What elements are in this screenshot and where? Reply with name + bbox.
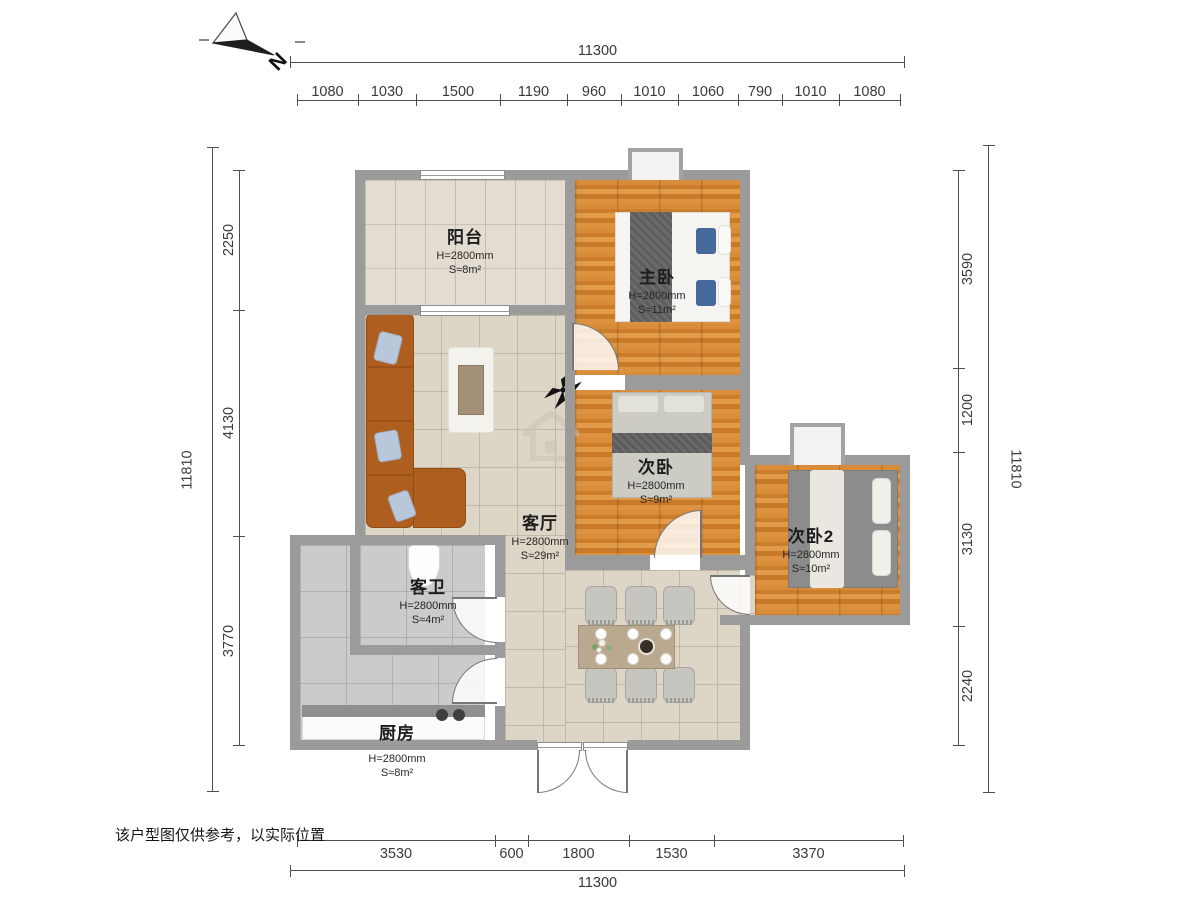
dim-top-total-label: 11300 <box>578 43 617 59</box>
dining-chair <box>663 667 695 703</box>
dim-segment: 1080 <box>297 84 358 101</box>
dim-segment: 1800 <box>528 840 629 862</box>
wall <box>290 535 505 545</box>
dim-segment: 1200 <box>958 368 978 452</box>
room-label-balcony: 阳台 H=2800mm S≈8m² <box>436 223 493 276</box>
serving-dish <box>638 638 655 655</box>
entry-door-right <box>585 750 628 793</box>
dim-segment: 1060 <box>678 84 738 101</box>
bed-pillow <box>718 225 731 255</box>
room-label-bath: 客卫 H=2800mm S≈4m² <box>399 573 456 626</box>
dim-segment: 3530 <box>297 840 495 862</box>
bed-pillow <box>872 530 891 576</box>
dim-segment: 1030 <box>358 84 416 101</box>
wall <box>565 555 650 570</box>
wall <box>355 170 750 180</box>
compass-icon: N <box>198 10 306 72</box>
sofa-pillow <box>374 429 403 463</box>
wall <box>495 642 505 658</box>
dim-segment: 600 <box>495 840 528 862</box>
disclaimer-text: 该户型图仅供参考，以实际位置 <box>115 824 325 845</box>
bedroom3-bay-window <box>790 423 845 465</box>
wall <box>745 465 755 575</box>
dim-segment: 1500 <box>416 84 500 101</box>
dim-segment: 790 <box>738 84 782 101</box>
wall <box>350 645 495 655</box>
dim-right-total: 11810 <box>988 145 1002 793</box>
wall <box>625 375 740 390</box>
dining-chair <box>625 586 657 625</box>
wall <box>350 535 360 655</box>
dim-segment: 2250 <box>220 170 240 310</box>
stove-burner <box>436 709 448 721</box>
balcony-window <box>420 170 505 180</box>
dim-segment: 3590 <box>958 170 978 368</box>
floorplan-page: { "compass": {"label": "N"}, "disclaimer… <box>0 0 1200 900</box>
wall <box>565 375 575 390</box>
bed-pillow <box>718 277 731 307</box>
dim-segment: 2240 <box>958 626 978 745</box>
dim-segment: 1190 <box>500 84 567 101</box>
dim-bottom-total: 11300 <box>290 870 905 896</box>
bed-pillow <box>872 478 891 524</box>
bed-runner <box>612 433 712 453</box>
floorplan: 阳台 H=2800mm S≈8m² 主卧 H=2800mm S≈11m² 次卧 … <box>290 145 910 805</box>
dim-top-total: 11300 <box>290 36 905 63</box>
dining-chair <box>585 667 617 703</box>
dining-chair <box>585 586 617 625</box>
wall <box>495 535 505 597</box>
coffee-table <box>458 365 484 415</box>
dining-chair <box>663 586 695 625</box>
dim-segment: 1080 <box>839 84 900 101</box>
stove-burner <box>453 709 465 721</box>
dining-floor-left <box>505 535 565 745</box>
wall <box>700 555 745 570</box>
room-label-living: 客厅 H=2800mm S≈29m² <box>511 509 568 562</box>
wall <box>740 170 750 465</box>
blue-pillow <box>696 228 716 254</box>
wall <box>290 535 300 750</box>
wall <box>628 740 740 750</box>
north-arrow: N <box>198 10 306 72</box>
dim-segment: 960 <box>567 84 621 101</box>
dining-chair <box>625 667 657 703</box>
dim-segment: 3370 <box>714 840 903 862</box>
wall <box>720 615 910 625</box>
dim-segment: 4130 <box>220 310 240 536</box>
sofa-chaise <box>413 468 466 528</box>
wall <box>745 455 790 465</box>
master-bay-window <box>628 148 683 180</box>
wall <box>495 706 505 750</box>
bed-pillow <box>664 396 704 412</box>
wall <box>740 625 750 750</box>
blue-pillow <box>696 280 716 306</box>
bed-pillow <box>618 396 658 412</box>
room-label-kitchen: 厨房 H=2800mm S≈8m² <box>368 719 425 779</box>
room-label-master: 主卧 H=2800mm S≈11m² <box>628 263 685 316</box>
table-flowers <box>590 637 616 655</box>
room-label-bedroom3: 次卧2 H=2800mm S≈10m² <box>782 522 839 575</box>
balcony-sliding-door <box>420 305 510 316</box>
entry-door-left <box>537 750 580 793</box>
dim-segment: 1010 <box>782 84 839 101</box>
wall <box>355 170 365 540</box>
dim-segment: 1530 <box>629 840 714 862</box>
dim-segment: 3130 <box>958 452 978 626</box>
dim-segment: 1010 <box>621 84 678 101</box>
ceiling-fan-icon <box>542 369 584 411</box>
wall <box>900 455 910 625</box>
dim-segment: 3770 <box>220 536 240 745</box>
room-label-bedroom2: 次卧 H=2800mm S≈9m² <box>627 453 684 506</box>
